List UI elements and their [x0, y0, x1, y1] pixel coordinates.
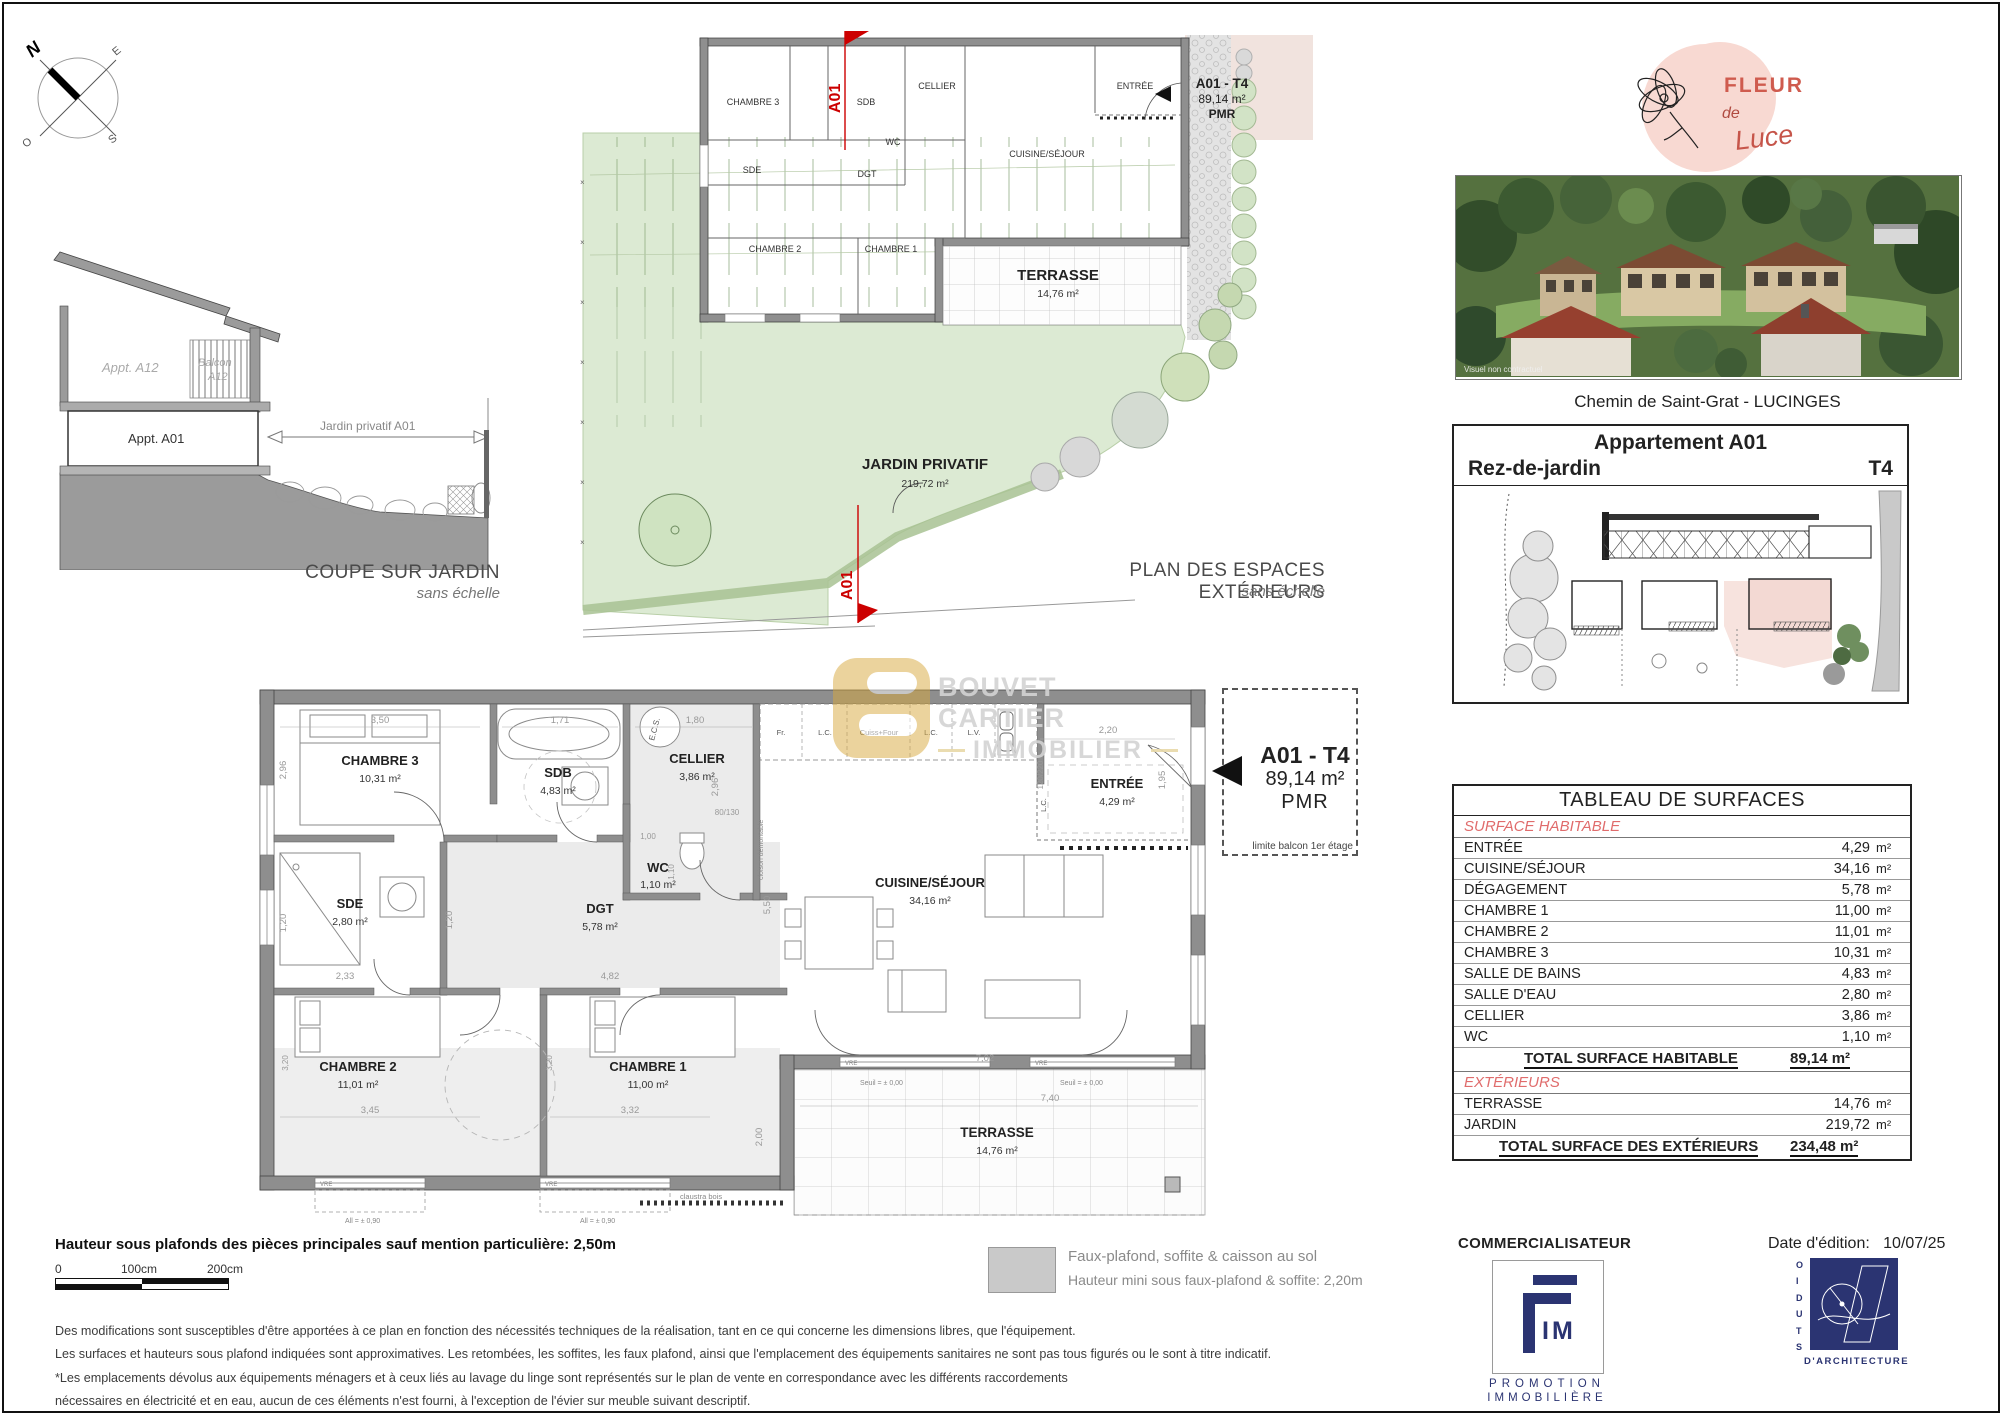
room-entree-area: 4,29 m² — [1099, 796, 1135, 808]
commercialisateur-label: COMMERCIALISATEUR — [1458, 1235, 1631, 1252]
room-sde-area: 2,80 m² — [332, 916, 368, 928]
legend-line1: Faux-plafond, soffite & caisson au sol — [1068, 1248, 1317, 1265]
disclaimer-line2: Les surfaces et hauteurs sous plafond in… — [55, 1343, 1385, 1366]
table-row: CHAMBRE 211,01m² — [1454, 922, 1910, 943]
row-value: 11,00 — [1810, 901, 1870, 921]
room-wc-area: 1,10 m² — [640, 879, 676, 891]
svg-text:×: × — [580, 298, 585, 307]
row-unit: m² — [1870, 1094, 1910, 1114]
studio-vertical-letters: STUDIO — [1796, 1260, 1803, 1352]
unit-box-type: T4 — [1868, 457, 1893, 481]
room-chambre1-area: 11,00 m² — [628, 1079, 669, 1091]
table-row: JARDIN219,72m² — [1454, 1115, 1910, 1136]
unit-info-box: Appartement A01 Rez-de-jardin T4 — [1452, 424, 1909, 704]
table-row: CELLIER3,86m² — [1454, 1006, 1910, 1027]
row-label: ENTRÉE — [1454, 838, 1810, 858]
scale-bar: 0 100cm 200cm — [55, 1262, 285, 1290]
note-allege-2: All = ± 0,90 — [580, 1218, 615, 1225]
photo-caption: Visuel non contractuel — [1464, 365, 1543, 374]
project-address: Chemin de Saint-Grat - LUCINGES — [1455, 392, 1960, 412]
dim-terrasse-w: 7,40 — [1041, 1093, 1060, 1104]
table-row: ENTRÉE4,29m² — [1454, 838, 1910, 859]
table-row: CHAMBRE 111,00m² — [1454, 901, 1910, 922]
scale-tick-0: 0 — [55, 1262, 62, 1276]
coupe-appt-a01-label: Appt. A01 — [128, 431, 184, 446]
ext-room-chambre3: CHAMBRE 3 — [727, 97, 780, 107]
ext-jardin-label: JARDIN PRIVATIF — [862, 456, 988, 473]
table-row: SALLE D'EAU2,80m² — [1454, 985, 1910, 1006]
coupe-balcon-label2: A12 — [207, 371, 228, 383]
row-label: DÉGAGEMENT — [1454, 880, 1810, 900]
row-unit: m² — [1870, 901, 1910, 921]
section-marker-a01-bottom: A01 — [839, 571, 856, 600]
table-total-exterieurs: TOTAL SURFACE DES EXTÉRIEURS234,48 m² — [1454, 1136, 1910, 1159]
main-unit-tag: A01 - T4 89,14 m² PMR — [1245, 742, 1365, 814]
watermark: BOUVET CARTIER IMMOBILIER — [938, 672, 1178, 765]
fleur-de-luce-logo: FLEUR de Luce — [1600, 26, 1810, 186]
row-value: 2,80 — [1810, 985, 1870, 1005]
logo-word-luce: Luce — [1733, 119, 1795, 156]
compass-n: N — [22, 37, 46, 61]
coupe-sur-jardin-drawing: Appt. A12 Balcon A12 Appt. A01 Jardin pr… — [40, 240, 510, 570]
row-unit: m² — [1870, 1027, 1910, 1047]
row-unit: m² — [1870, 1006, 1910, 1026]
table-section-habitable: SURFACE HABITABLE — [1454, 816, 1910, 838]
coupe-jardin-dim-label: Jardin privatif A01 — [320, 419, 416, 433]
row-unit: m² — [1870, 964, 1910, 984]
fim-logo: IM — [1492, 1260, 1604, 1374]
surface-table: TABLEAU DE SURFACES SURFACE HABITABLE EN… — [1452, 784, 1912, 1161]
dim-chambre3-w: 3,50 — [371, 715, 390, 726]
note-seuil-2: Seuil = ± 0,00 — [1060, 1080, 1103, 1087]
ext-room-cellier: CELLIER — [918, 81, 956, 91]
svg-text:×: × — [580, 478, 585, 487]
row-label: JARDIN — [1454, 1115, 1810, 1135]
ext-room-entree: ENTRÉE — [1117, 81, 1154, 91]
watermark-line1: BOUVET CARTIER — [938, 672, 1178, 734]
note-vre-1: VRE — [320, 1182, 332, 1188]
scale-tick-100: 100cm — [121, 1262, 157, 1276]
dim-dgt-w: 4,82 — [601, 971, 620, 982]
dim-chambre1-h: 3,20 — [545, 1055, 554, 1071]
kitchen-lc1: L.C. — [818, 728, 832, 737]
row-value: 5,78 — [1810, 880, 1870, 900]
ext-room-wc: WC — [886, 137, 901, 147]
coupe-appt-a12-label: Appt. A12 — [101, 360, 159, 375]
row-unit: m² — [1870, 922, 1910, 942]
room-dgt-area: 5,78 m² — [582, 921, 618, 933]
row-label: SALLE D'EAU — [1454, 985, 1810, 1005]
disclaimer-line3: *Les emplacements dévolus aux équipement… — [55, 1367, 1385, 1390]
main-unit-pmr: PMR — [1245, 791, 1365, 814]
table-row: SALLE DE BAINS4,83m² — [1454, 964, 1910, 985]
dim-window: 80/130 — [715, 808, 740, 817]
ext-unit-tag: A01 - T4 89,14 m² PMR — [1172, 76, 1272, 121]
site-plan-drawing — [1454, 486, 1903, 696]
edition-date: Date d'édition: 10/07/25 — [1768, 1235, 1945, 1253]
row-unit: m² — [1870, 1115, 1910, 1135]
dim-sde-w: 2,33 — [336, 971, 355, 982]
kitchen-lc3: L.C. — [1039, 798, 1048, 812]
disclaimer-line4: nécessaires en électricité et en eau, au… — [55, 1390, 1385, 1413]
row-unit: m² — [1870, 838, 1910, 858]
dim-terrasse-h: 2,00 — [754, 1128, 765, 1147]
unit-box-floor: Rez-de-jardin — [1468, 457, 1601, 481]
note-vre-2: VRE — [545, 1182, 557, 1188]
total-value: 89,14 m² — [1790, 1050, 1850, 1069]
note-vre-4: VRE — [1035, 1061, 1047, 1067]
main-unit-area: 89,14 m² — [1245, 768, 1365, 791]
unit-arrow-icon — [1212, 756, 1242, 786]
compass-e: E — [110, 44, 123, 58]
room-sdb-label: SDB — [544, 765, 571, 780]
row-label: CHAMBRE 1 — [1454, 901, 1810, 921]
row-unit: m² — [1870, 859, 1910, 879]
room-chambre1-label: CHAMBRE 1 — [609, 1059, 686, 1074]
main-unit-code: A01 - T4 — [1245, 742, 1365, 768]
row-label: CHAMBRE 3 — [1454, 943, 1810, 963]
svg-text:×: × — [580, 358, 585, 367]
row-label: CUISINE/SÉJOUR — [1454, 859, 1810, 879]
room-sde-label: SDE — [337, 896, 364, 911]
room-cuisine-label: CUISINE/SÉJOUR — [875, 875, 985, 890]
row-unit: m² — [1870, 880, 1910, 900]
kitchen-fr: Fr. — [777, 728, 786, 737]
unit-box-title: Appartement A01 — [1454, 426, 1907, 455]
dim-sdb-w: 1,71 — [551, 715, 570, 726]
dim-cuisine-w: 7,02 — [976, 1053, 995, 1064]
logo-word-de: de — [1722, 105, 1740, 122]
row-value: 3,86 — [1810, 1006, 1870, 1026]
row-value: 219,72 — [1810, 1115, 1870, 1135]
room-dgt-label: DGT — [586, 901, 614, 916]
row-unit: m² — [1870, 943, 1910, 963]
disclaimer-text: Des modifications sont susceptibles d'êt… — [55, 1320, 1385, 1413]
table-row: CUISINE/SÉJOUR34,16m² — [1454, 859, 1910, 880]
studio-sub-label: D'ARCHITECTURE — [1804, 1356, 1909, 1367]
row-value: 4,29 — [1810, 838, 1870, 858]
room-chambre2-area: 11,01 m² — [338, 1079, 379, 1091]
row-label: CHAMBRE 2 — [1454, 922, 1810, 942]
svg-text:×: × — [580, 418, 585, 427]
svg-text:×: × — [580, 538, 585, 547]
unit-arrow-icon — [1155, 86, 1171, 102]
dim-chambre3-h: 2,96 — [278, 761, 289, 780]
ext-unit-code: A01 - T4 — [1172, 76, 1272, 92]
ext-room-chambre1: CHAMBRE 1 — [865, 244, 918, 254]
row-value: 10,31 — [1810, 943, 1870, 963]
disclaimer-line1: Des modifications sont susceptibles d'êt… — [55, 1320, 1385, 1343]
watermark-line2: IMMOBILIER — [973, 736, 1143, 765]
table-row: DÉGAGEMENT5,78m² — [1454, 880, 1910, 901]
svg-text:×: × — [580, 178, 585, 187]
dim-cuisine-h: 5,50 — [762, 896, 773, 915]
dim-sde-h: 1,20 — [278, 914, 289, 933]
total-label: TOTAL SURFACE HABITABLE — [1524, 1050, 1738, 1069]
compass-o: O — [20, 135, 35, 150]
room-chambre3-area: 10,31 m² — [359, 773, 401, 785]
note-claustra: claustra bois — [680, 1192, 722, 1201]
logo-word-fleur: FLEUR — [1724, 74, 1804, 97]
project-photo: Visuel non contractuel — [1455, 175, 1962, 380]
dim-dgt-h: 1,20 — [444, 911, 455, 930]
ext-jardin-area: 219,72 m² — [901, 478, 949, 490]
compass-rose-icon: N E S O — [10, 20, 140, 160]
ext-unit-pmr: PMR — [1172, 107, 1272, 121]
coupe-subtitle: sans échelle — [260, 585, 500, 602]
row-unit: m² — [1870, 985, 1910, 1005]
ext-terrasse-label: TERRASSE — [1017, 267, 1099, 284]
room-entree-label: ENTRÉE — [1091, 776, 1144, 791]
ext-room-dgt: DGT — [858, 169, 878, 179]
fim-sub2: IMMOBILIÈRE — [1480, 1392, 1614, 1404]
legend-line2: Hauteur mini sous faux-plafond & soffite… — [1068, 1272, 1363, 1288]
dim-chambre1-w: 3,32 — [621, 1105, 640, 1116]
ext-unit-area: 89,14 m² — [1172, 92, 1272, 106]
row-label: CELLIER — [1454, 1006, 1810, 1026]
total-label: TOTAL SURFACE DES EXTÉRIEURS — [1499, 1138, 1758, 1157]
bouvet-cartier-logo-icon — [833, 658, 930, 758]
compass-s: S — [106, 132, 119, 146]
ext-terrasse-area: 14,76 m² — [1037, 288, 1079, 300]
project-photo-render — [1456, 176, 1959, 377]
scale-bar-graphic — [55, 1278, 229, 1290]
dim-wc-h: 1,10 — [667, 864, 676, 880]
row-label: WC — [1454, 1027, 1810, 1047]
studio-logo-square — [1810, 1258, 1898, 1350]
row-value: 4,83 — [1810, 964, 1870, 984]
row-value: 1,10 — [1810, 1027, 1870, 1047]
limite-balcon-note: limite balcon 1er étage — [1252, 841, 1353, 852]
fim-sub1: PROMOTION — [1480, 1378, 1614, 1390]
coupe-title: COUPE SUR JARDIN — [260, 562, 500, 584]
ext-room-sde: SDE — [743, 165, 762, 175]
section-marker-a01-top: A01 — [827, 84, 844, 113]
fim-logo-letters: IM — [1542, 1317, 1576, 1346]
dim-cellier-h: 2,96 — [710, 778, 721, 797]
room-cuisine-area: 34,16 m² — [909, 895, 951, 907]
room-chambre2-label: CHAMBRE 2 — [319, 1059, 396, 1074]
legend-swatch — [988, 1247, 1056, 1293]
ext-room-sdb: SDB — [857, 97, 876, 107]
table-total-habitable: TOTAL SURFACE HABITABLE89,14 m² — [1454, 1048, 1910, 1072]
dim-cellier-w: 1,80 — [686, 715, 705, 726]
table-row: WC1,10m² — [1454, 1027, 1910, 1048]
room-chambre3-label: CHAMBRE 3 — [341, 753, 418, 768]
room-terrasse-label: TERRASSE — [960, 1125, 1034, 1140]
table-row: TERRASSE14,76m² — [1454, 1094, 1910, 1115]
table-section-exterieurs: EXTÉRIEURS — [1454, 1072, 1910, 1094]
date-value: 10/07/25 — [1883, 1235, 1945, 1252]
svg-text:×: × — [580, 238, 585, 247]
ceiling-height-note: Hauteur sous plafonds des pièces princip… — [55, 1236, 616, 1253]
row-value: 34,16 — [1810, 859, 1870, 879]
scale-tick-200: 200cm — [207, 1262, 243, 1276]
row-value: 11,01 — [1810, 922, 1870, 942]
ext-room-chambre2: CHAMBRE 2 — [749, 244, 802, 254]
room-sdb-area: 4,83 m² — [540, 785, 576, 797]
note-vre-3: VRE — [845, 1061, 857, 1067]
row-value: 14,76 — [1810, 1094, 1870, 1114]
table-row: CHAMBRE 310,31m² — [1454, 943, 1910, 964]
ext-room-cuisine: CUISINE/SÉJOUR — [1009, 149, 1085, 159]
room-cellier-label: CELLIER — [669, 751, 725, 766]
date-label: Date d'édition: — [1768, 1235, 1870, 1252]
dim-chambre2-h: 3,20 — [281, 1055, 290, 1071]
total-value: 234,48 m² — [1790, 1138, 1858, 1157]
surface-table-title: TABLEAU DE SURFACES — [1454, 786, 1910, 816]
dim-wc-w: 1,00 — [640, 832, 656, 841]
row-label: TERRASSE — [1454, 1094, 1810, 1114]
note-cloison: cloison démontable — [758, 820, 765, 880]
row-label: SALLE DE BAINS — [1454, 964, 1810, 984]
dim-entree-h: 1,95 — [1157, 771, 1168, 790]
note-seuil-1: Seuil = ± 0,00 — [860, 1080, 903, 1087]
dim-chambre2-w: 3,45 — [361, 1105, 380, 1116]
coupe-balcon-label: Balcon — [198, 357, 232, 369]
note-allege-1: All = ± 0,90 — [345, 1218, 380, 1225]
ext-plan-subtitle: sans échelle — [1035, 583, 1325, 600]
room-terrasse-area: 14,76 m² — [976, 1145, 1018, 1157]
